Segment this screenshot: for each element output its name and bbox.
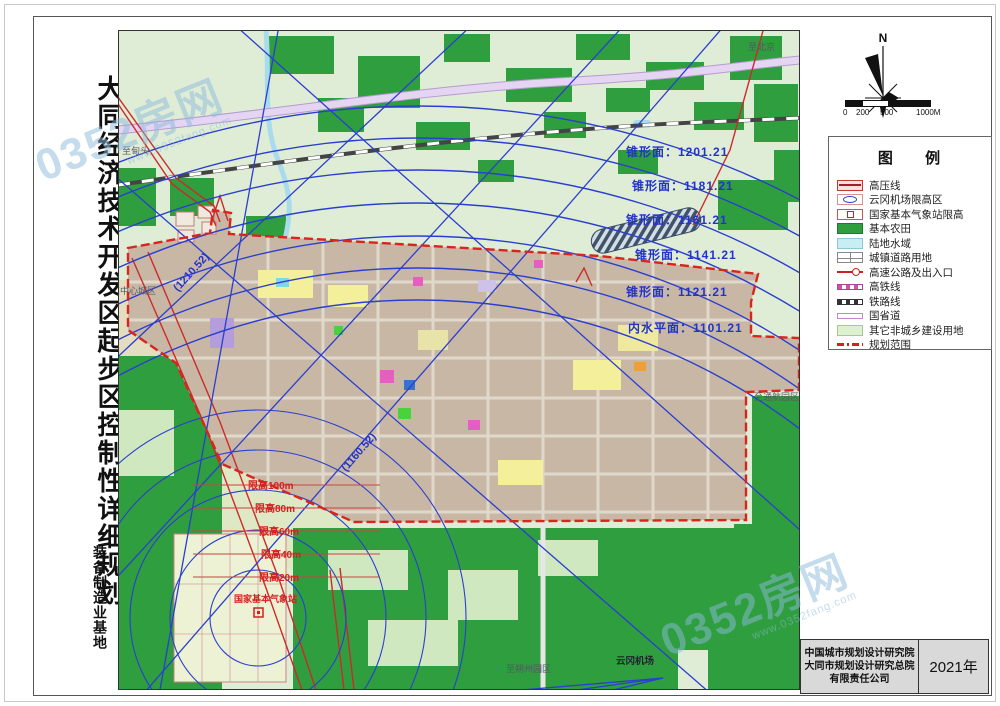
institute-line-1: 中国城市规划设计研究院 [805, 647, 915, 660]
legend-item-rail: 铁路线 [829, 294, 991, 309]
planning-map-svg: 锥形面：1201.21 锥形面：1181.21 锥形面：1161.21 锥形面：… [118, 30, 800, 690]
legend-item-province-road: 国省道 [829, 309, 991, 324]
hsr-line-swatch [837, 281, 863, 292]
height-limit-80: 限高80m [255, 502, 295, 515]
legend-label: 国家基本气象站限高 [869, 207, 964, 222]
plan-year: 2021年 [919, 640, 988, 693]
height-limit-20: 限高20m [259, 571, 299, 584]
legend-label: 高压线 [869, 178, 901, 193]
to-beijing-label: 至北京 [748, 41, 775, 52]
arc-label-1141: 锥形面：1141.21 [635, 247, 737, 262]
legend-label: 基本农田 [869, 221, 911, 236]
airport-zone-swatch [837, 194, 863, 205]
hv-line-swatch [837, 180, 863, 191]
arc-label-1201: 锥形面：1201.21 [626, 144, 728, 159]
legend-item-airport-zone: 云冈机场限高区 [829, 193, 991, 208]
scale-labels: 0 200 500 1000M [840, 108, 950, 120]
scale-seg-3 [888, 101, 930, 106]
legend-label: 规划范围 [869, 337, 911, 352]
arc-label-1121: 锥形面：1121.21 [626, 284, 728, 299]
urban-road-swatch [837, 252, 863, 263]
legend-item-water: 陆地水域 [829, 236, 991, 251]
north-label: N [879, 31, 888, 45]
arc-label-1161: 锥形面：1161.21 [626, 212, 728, 227]
legend-label: 高铁线 [869, 279, 901, 294]
scale-bar [845, 100, 931, 107]
rail-line-swatch [837, 296, 863, 307]
other-land-swatch [837, 325, 863, 336]
legend-item-hsr: 高铁线 [829, 280, 991, 295]
weather-station-label: 国家基本气象站 [234, 593, 297, 604]
design-institute-names: 中国城市规划设计研究院 大同市规划设计研究总院 有限责任公司 [801, 640, 919, 693]
scale-seg-2 [863, 101, 888, 106]
legend-item-urban-road: 城镇道路用地 [829, 251, 991, 266]
to-shuozhou-label: 至朔州园区 [506, 663, 551, 674]
arc-label-inner-water: 内水平面：1101.21 [628, 320, 743, 335]
plan-boundary-swatch [837, 339, 863, 350]
legend-item-weather-limit: 国家基本气象站限高 [829, 207, 991, 222]
map-canvas: 锥形面：1201.21 锥形面：1181.21 锥形面：1161.21 锥形面：… [118, 30, 800, 690]
highway-swatch [837, 267, 863, 278]
attribution-table: 中国城市规划设计研究院 大同市规划设计研究总院 有限责任公司 2021年 [800, 639, 989, 694]
legend-item-farmland: 基本农田 [829, 222, 991, 237]
farmland-swatch [837, 223, 863, 234]
legend-label: 其它非城乡建设用地 [869, 323, 964, 338]
scale-tick-500: 500 [880, 108, 893, 117]
height-limit-60: 限高60m [259, 525, 299, 538]
scale-tick-0: 0 [843, 108, 847, 117]
airport-label: 云冈机场 [616, 655, 655, 667]
legend-item-highway: 高速公路及出入口 [829, 265, 991, 280]
title-sidebar: 大同经济技术开发区起步区控制性详细规划 装备制造业基地 限定性要素分布图 [34, 17, 118, 693]
plan-subtitle-base: 装备制造业基地 [90, 545, 110, 650]
scale-tick-200: 200 [856, 108, 869, 117]
legend-label: 陆地水域 [869, 236, 911, 251]
water-swatch [837, 238, 863, 249]
arc-label-1181: 锥形面：1181.21 [632, 178, 734, 193]
legend-label: 城镇道路用地 [869, 250, 932, 265]
legend-title: 图 例 [841, 147, 991, 168]
legend-panel: 图 例 高压线 云冈机场限高区 国家基本气象站限高 基本农田 陆地水域 城镇道路… [828, 136, 992, 350]
institute-line-2: 大同市规划设计研究总院 [805, 660, 915, 673]
height-limit-40: 限高40m [261, 548, 301, 561]
legend-label: 云冈机场限高区 [869, 192, 943, 207]
scale-tick-1000: 1000M [916, 108, 940, 117]
to-diantou-label: 至甸头 [122, 145, 149, 156]
legend-label: 铁路线 [869, 294, 901, 309]
institute-line-3: 有限责任公司 [830, 673, 890, 686]
height-limit-100: 限高100m [248, 479, 294, 492]
legend-item-other-land: 其它非城乡建设用地 [829, 323, 991, 338]
scale-seg-1 [846, 101, 863, 106]
legend-label: 国省道 [869, 308, 901, 323]
yudong-district-label: 御东中心城区 [118, 285, 156, 296]
legend-item-hv-line: 高压线 [829, 178, 991, 193]
province-road-swatch [837, 310, 863, 321]
weather-limit-swatch [837, 209, 863, 220]
legend-item-plan-boundary: 规划范围 [829, 338, 991, 353]
to-tonghang-label: 至通航园区 [754, 391, 799, 402]
legend-label: 高速公路及出入口 [869, 265, 953, 280]
